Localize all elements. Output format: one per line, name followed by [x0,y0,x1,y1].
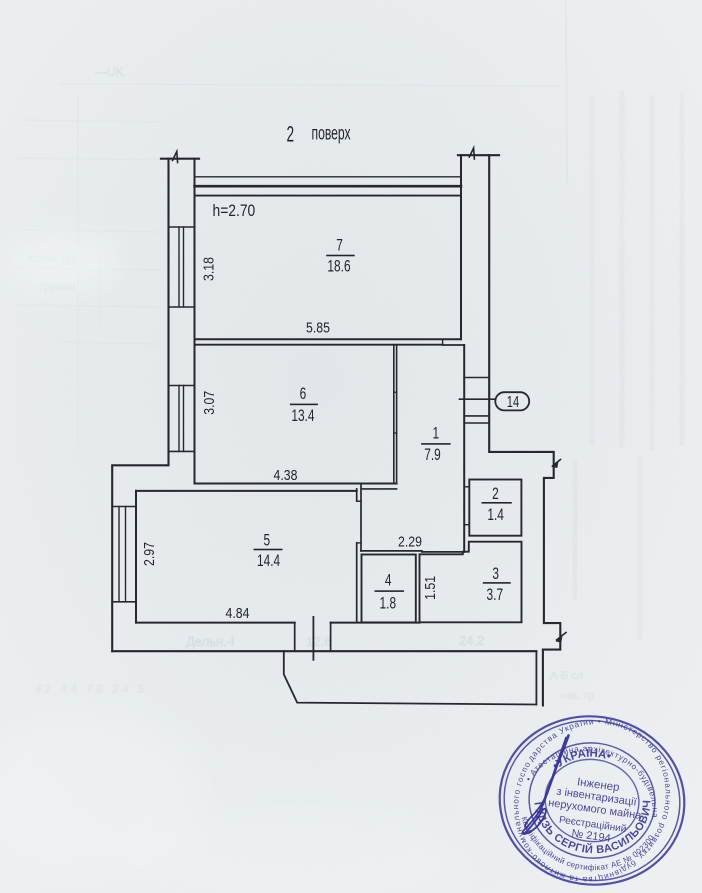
svg-text:1.4: 1.4 [487,506,504,525]
svg-text:7.9: 7.9 [424,446,441,465]
svg-text:Дельн.-і: Дельн.-і [186,634,234,649]
svg-text:2.29: 2.29 [398,533,422,549]
svg-text:2: 2 [287,121,295,146]
svg-text:14: 14 [507,393,520,410]
svg-text:18.6: 18.6 [327,258,350,277]
svg-text:14.4: 14.4 [257,552,280,571]
svg-text:7: 7 [336,237,343,256]
svg-text:5.85: 5.85 [306,319,330,335]
svg-text:24.2: 24.2 [459,633,484,648]
svg-text:4: 4 [385,572,392,591]
svg-text:4.84: 4.84 [226,605,250,621]
svg-text:12.6: 12.6 [306,634,331,649]
svg-text:4.38: 4.38 [274,467,298,483]
svg-text:3.18: 3.18 [200,257,216,281]
svg-text:1: 1 [432,424,439,443]
svg-text:2.97: 2.97 [141,542,157,566]
svg-text:1.8: 1.8 [380,595,397,614]
svg-text:6: 6 [300,385,307,404]
svg-text:3: 3 [492,565,499,584]
svg-text:А-Б сл: А-Б сл [550,670,583,682]
svg-text:5: 5 [263,531,270,550]
svg-text:13.4: 13.4 [291,407,314,426]
svg-text:h=2.70: h=2.70 [213,202,256,220]
svg-text:---UΚ: ---UΚ [95,65,124,79]
svg-text:1.51: 1.51 [422,576,438,600]
svg-text:2: 2 [492,485,499,504]
svg-text:поверх: поверх [312,124,351,144]
svg-text:3.07: 3.07 [201,391,217,415]
svg-text:нак. тр: нак. тр [560,690,594,702]
svg-text:3.7: 3.7 [487,586,504,605]
svg-text:42 44 79 24 5: 42 44 79 24 5 [35,682,147,696]
